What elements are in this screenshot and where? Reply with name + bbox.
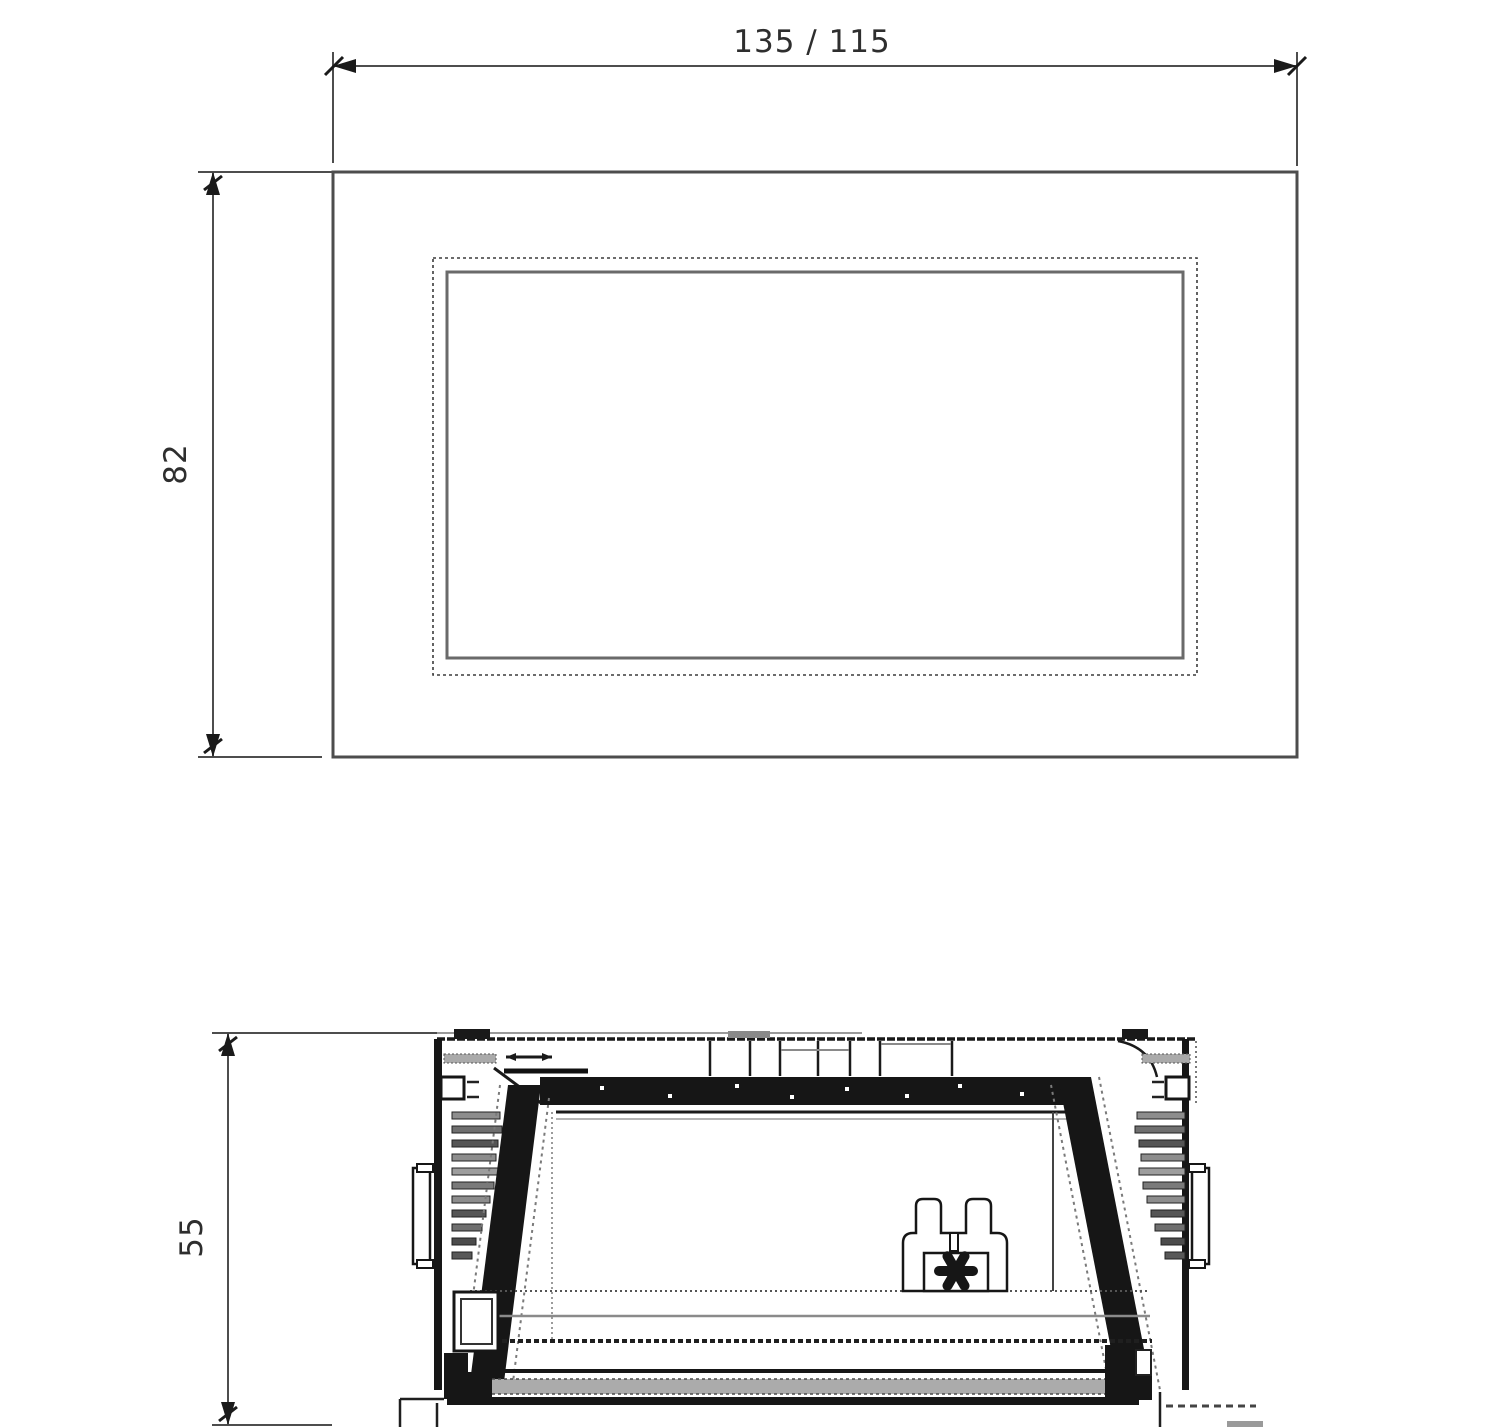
- technical-drawing: 135 / 115 82 55: [0, 0, 1500, 1427]
- door-frame-left: [454, 1292, 498, 1351]
- section-view: 55: [174, 1029, 1263, 1427]
- door-bottom-bar: [447, 1397, 1139, 1405]
- width-dimension: 135 / 115: [325, 24, 1306, 166]
- front-outer-frame: [333, 172, 1297, 757]
- height-dimension: 82: [158, 172, 333, 757]
- door-assembly: [444, 1292, 1152, 1405]
- back-tab-left: [454, 1029, 490, 1039]
- left-handle: [413, 1164, 433, 1268]
- right-sloped-wall: [1058, 1077, 1152, 1390]
- latch-notch-right: [1136, 1350, 1151, 1375]
- insulation-band: [494, 1041, 1157, 1119]
- drawing-canvas: 135 / 115 82 55: [0, 0, 1500, 1427]
- flue-channel-dividers: [710, 1041, 952, 1076]
- back-tab-gray: [728, 1031, 770, 1038]
- dim-arrow-left-icon: [333, 59, 356, 73]
- firebox-side-walls: [461, 1077, 1160, 1390]
- width-dimension-label: 135 / 115: [733, 24, 891, 60]
- flue-bracket: [903, 1199, 1007, 1291]
- front-view: [333, 172, 1297, 757]
- height-dimension-label: 82: [158, 443, 194, 484]
- back-tab-right: [1122, 1029, 1148, 1039]
- right-handle: [1189, 1164, 1209, 1268]
- damper-detail-right: [1142, 1054, 1190, 1063]
- depth-dimension-label: 55: [174, 1216, 210, 1257]
- glass-pane: [474, 1379, 1122, 1394]
- corner-box-left: [441, 1077, 479, 1099]
- right-vent-slats: [1135, 1112, 1185, 1259]
- depth-dimension: 55: [174, 1033, 448, 1425]
- floor-lines: [462, 1291, 1152, 1341]
- corner-box-right: [1152, 1077, 1189, 1099]
